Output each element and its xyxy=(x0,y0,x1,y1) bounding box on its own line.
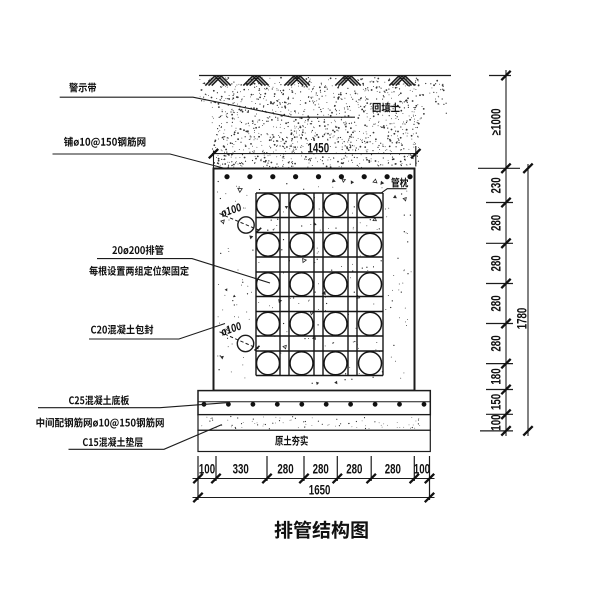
svg-text:280: 280 xyxy=(313,462,330,477)
svg-text:280: 280 xyxy=(489,335,504,352)
svg-text:100: 100 xyxy=(199,462,216,477)
svg-text:150: 150 xyxy=(489,393,504,410)
svg-text:280: 280 xyxy=(385,462,402,477)
svg-text:280: 280 xyxy=(277,462,294,477)
svg-text:100: 100 xyxy=(489,414,504,431)
svg-text:180: 180 xyxy=(489,368,504,385)
svg-text:280: 280 xyxy=(489,255,504,272)
svg-text:330: 330 xyxy=(233,462,250,477)
svg-text:280: 280 xyxy=(489,295,504,312)
svg-text:1650: 1650 xyxy=(309,483,331,498)
svg-text:1780: 1780 xyxy=(515,307,530,329)
svg-text:100: 100 xyxy=(414,462,431,477)
svg-text:280: 280 xyxy=(489,214,504,231)
svg-text:1450: 1450 xyxy=(307,141,329,156)
svg-text:230: 230 xyxy=(489,177,504,194)
svg-text:280: 280 xyxy=(346,462,363,477)
svg-text:≥1000: ≥1000 xyxy=(489,108,504,135)
